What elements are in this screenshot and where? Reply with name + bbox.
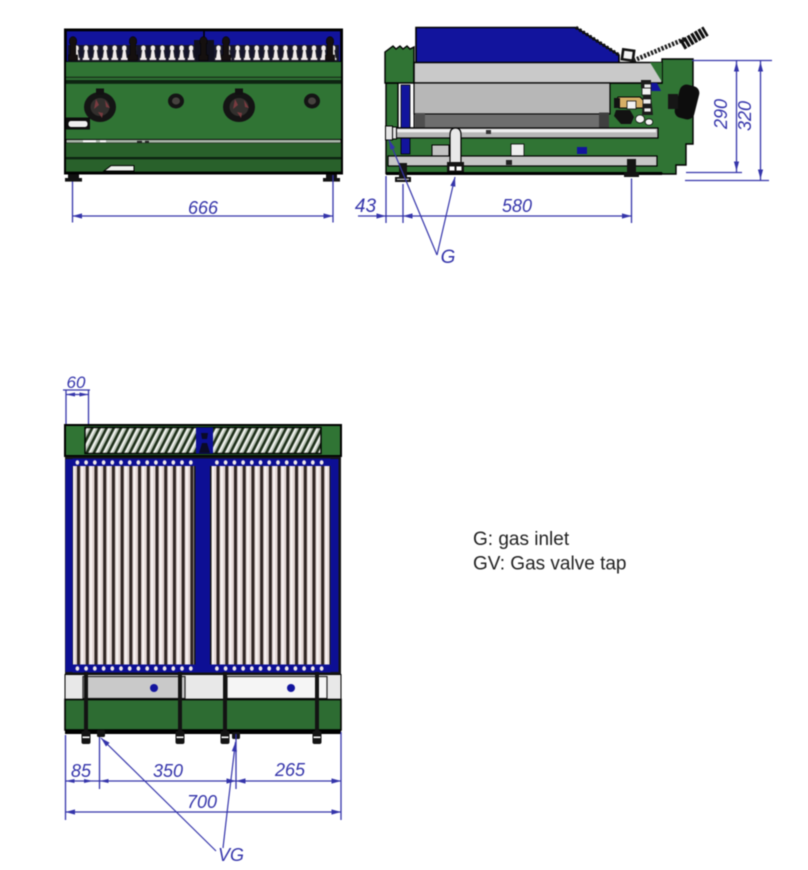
- svg-text:G: G: [441, 247, 456, 268]
- svg-text:580: 580: [502, 196, 532, 216]
- svg-text:85: 85: [71, 761, 92, 781]
- svg-text:GV: Gas valve tap: GV: Gas valve tap: [473, 554, 626, 575]
- svg-text:VG: VG: [218, 845, 244, 865]
- svg-text:666: 666: [188, 198, 219, 218]
- svg-text:700: 700: [187, 792, 217, 812]
- svg-text:290: 290: [711, 99, 731, 130]
- svg-text:60: 60: [67, 373, 86, 392]
- svg-text:265: 265: [274, 760, 306, 780]
- svg-text:320: 320: [735, 101, 755, 131]
- svg-text:350: 350: [153, 761, 183, 781]
- svg-text:G: gas inlet: G: gas inlet: [473, 529, 570, 550]
- svg-text:43: 43: [355, 196, 377, 217]
